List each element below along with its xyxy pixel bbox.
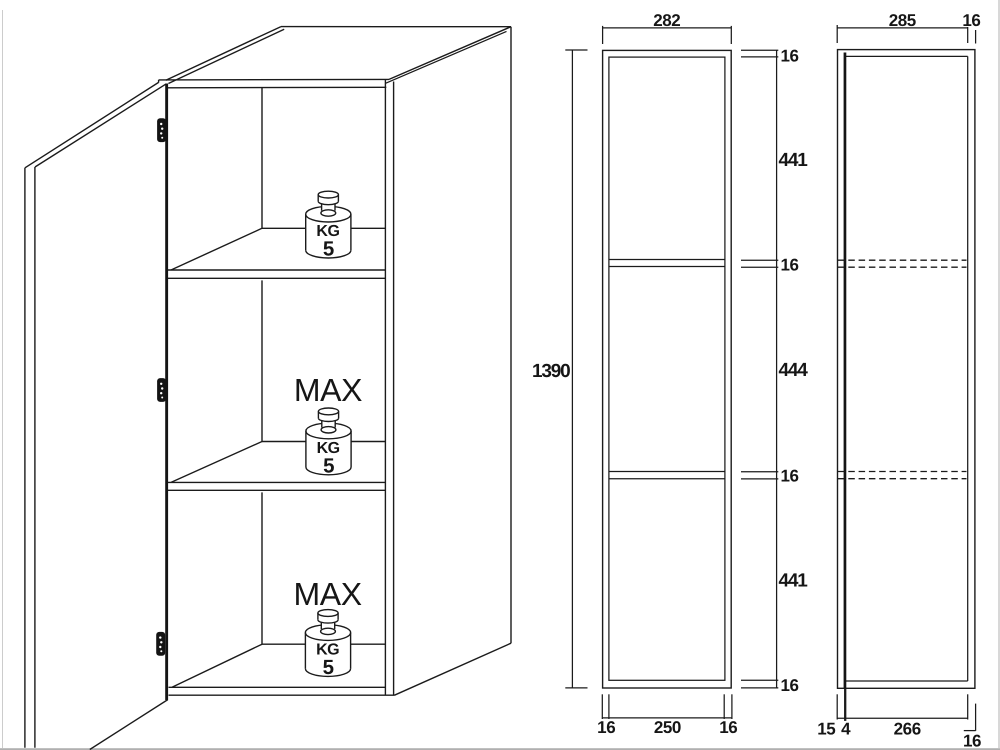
svg-text:16: 16 bbox=[719, 718, 737, 737]
svg-text:444: 444 bbox=[779, 360, 809, 381]
svg-text:1390: 1390 bbox=[532, 361, 570, 382]
svg-text:250: 250 bbox=[654, 718, 681, 737]
svg-text:282: 282 bbox=[653, 11, 680, 30]
svg-text:16: 16 bbox=[962, 11, 980, 30]
svg-text:MAX: MAX bbox=[294, 576, 362, 612]
svg-text:5: 5 bbox=[323, 238, 334, 261]
svg-text:16: 16 bbox=[781, 676, 799, 695]
svg-text:266: 266 bbox=[894, 719, 921, 738]
svg-text:441: 441 bbox=[779, 570, 809, 591]
svg-text:285: 285 bbox=[889, 11, 916, 30]
svg-text:4: 4 bbox=[841, 719, 851, 738]
svg-text:16: 16 bbox=[781, 46, 799, 65]
svg-text:16: 16 bbox=[781, 255, 799, 274]
svg-text:15: 15 bbox=[817, 719, 835, 738]
svg-text:16: 16 bbox=[597, 718, 615, 737]
svg-text:MAX: MAX bbox=[294, 372, 362, 408]
svg-text:16: 16 bbox=[963, 731, 981, 750]
svg-text:16: 16 bbox=[781, 467, 799, 486]
svg-text:441: 441 bbox=[779, 150, 809, 171]
